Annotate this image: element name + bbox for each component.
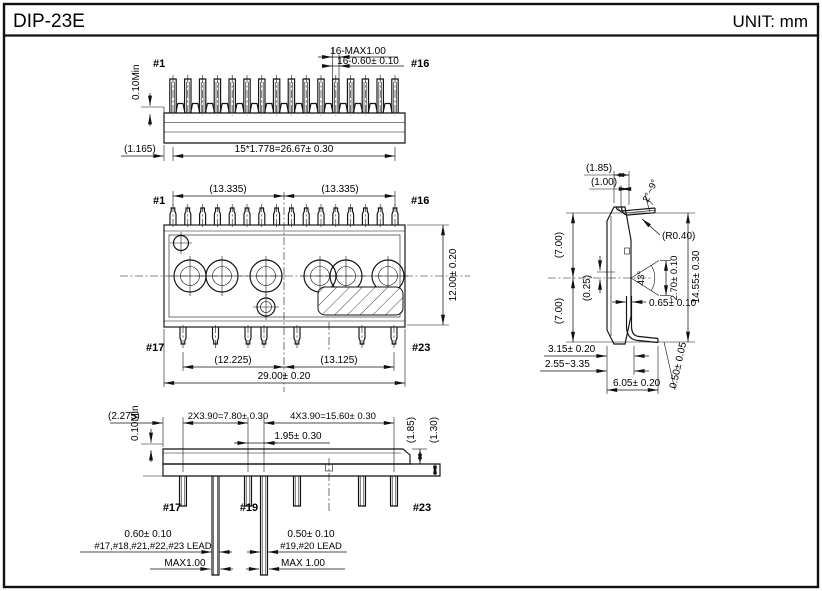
lead-wide-pins: #17,#18,#21,#22,#23 LEAD bbox=[94, 541, 211, 552]
dim-half-right: (13.335) bbox=[321, 184, 358, 195]
dim-top-offset-a: (1.85) bbox=[586, 163, 612, 174]
dim-lead-web: 0.65± 0.10 bbox=[649, 298, 697, 309]
dimension-drawing: DIP-23E UNIT: mm 16-MAX1.00 bbox=[0, 0, 822, 591]
lead-wide-max: MAX1.00 bbox=[164, 558, 206, 569]
dim-body-width: 29.00± 0.20 bbox=[258, 371, 311, 382]
dim-center-offset: (0.25) bbox=[582, 275, 593, 301]
dim-pitch-center: 1.95± 0.30 bbox=[274, 431, 322, 442]
dim-top-offset-b: (1.00) bbox=[591, 177, 617, 188]
drawing-page: DIP-23E UNIT: mm 16-MAX1.00 bbox=[0, 0, 822, 591]
bottom-pin-label-23: #23 bbox=[413, 502, 431, 514]
page-title: DIP-23E bbox=[13, 11, 85, 32]
dim-upper-half: (7.00) bbox=[554, 232, 565, 258]
dim-bottom-left-half: (12.225) bbox=[214, 355, 251, 366]
dim-wedge-height: 2.70± 0.10 bbox=[669, 256, 680, 301]
bottom-pin-label-19: #19 bbox=[240, 502, 258, 514]
dim-standoff-top: 0.10Min bbox=[131, 64, 142, 100]
lead-narrow-max: MAX 1.00 bbox=[281, 558, 325, 569]
unit-label: UNIT: mm bbox=[732, 12, 808, 31]
dim-pitch-total: 15*1.778=26.67± 0.30 bbox=[235, 144, 334, 155]
dim-pitch-left: 2X3.90=7.80± 0.30 bbox=[188, 411, 269, 422]
dim-body-thickness: 3.15± 0.20 bbox=[548, 344, 596, 355]
marking-area-hatch bbox=[318, 287, 403, 315]
dim-pitch-right: 4X3.90=15.60± 0.30 bbox=[290, 411, 376, 422]
dim-body-height: 12.00± 0.20 bbox=[448, 248, 459, 301]
dim-edge-to-pin17: (2.275) bbox=[108, 411, 140, 422]
dim-seating-range: 2.55~3.35 bbox=[545, 359, 590, 370]
pin-label-16: #16 bbox=[411, 58, 429, 70]
dim-step-b: (1.30) bbox=[429, 417, 440, 443]
dim-bottom-lead: 6.05± 0.20 bbox=[613, 378, 661, 389]
dim-lead-width: 16-0.60± 0.10 bbox=[337, 56, 399, 67]
plan-pin-label-23: #23 bbox=[412, 342, 430, 354]
dim-overall-height: 14.55± 0.30 bbox=[691, 250, 702, 303]
pin-label-1: #1 bbox=[153, 58, 165, 70]
bottom-pin-label-17: #17 bbox=[163, 502, 181, 514]
bend-radius: (R0.40) bbox=[662, 231, 695, 242]
dim-bottom-right-half: (13.125) bbox=[320, 355, 357, 366]
dim-half-left: (13.335) bbox=[209, 184, 246, 195]
lead-narrow-pins: #19,#20 LEAD bbox=[280, 541, 342, 552]
lead-wide-width: 0.60± 0.10 bbox=[124, 529, 172, 540]
dim-step-a: (1.85) bbox=[406, 417, 417, 443]
plan-pin-label-17: #17 bbox=[146, 342, 164, 354]
lead-narrow-width: 0.50± 0.10 bbox=[287, 529, 335, 540]
dim-edge-to-pin1: (1.165) bbox=[124, 144, 156, 155]
plan-pin-label-16: #16 bbox=[411, 195, 429, 207]
plan-pin-label-1: #1 bbox=[153, 195, 165, 207]
dim-lower-half: (7.00) bbox=[554, 298, 565, 324]
wedge-angle: 43° bbox=[636, 271, 647, 286]
